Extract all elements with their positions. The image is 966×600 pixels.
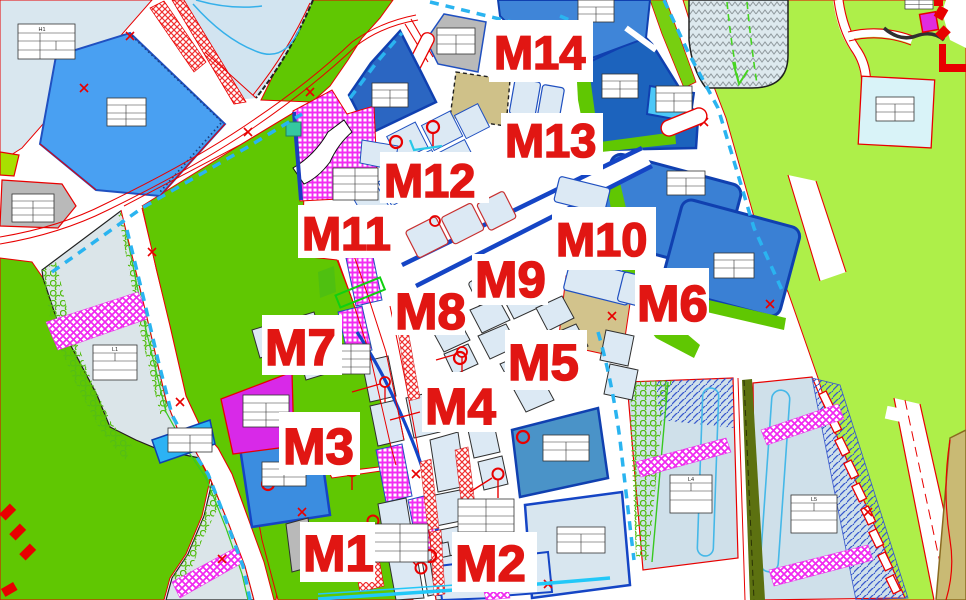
- svg-text:M14: M14: [494, 26, 585, 79]
- svg-text:M10: M10: [556, 213, 647, 266]
- svg-text:L5: L5: [811, 497, 817, 503]
- svg-text:L4: L4: [688, 477, 694, 483]
- svg-text:L1: L1: [112, 347, 118, 353]
- svg-text:M2: M2: [455, 535, 526, 592]
- svg-text:M4: M4: [425, 378, 496, 435]
- svg-text:M1: M1: [303, 525, 374, 582]
- svg-text:M11: M11: [302, 207, 391, 260]
- svg-text:M7: M7: [265, 319, 336, 376]
- svg-text:M9: M9: [475, 251, 546, 308]
- svg-text:M13: M13: [505, 114, 596, 167]
- svg-text:M3: M3: [283, 418, 354, 475]
- svg-text:H1: H1: [38, 27, 45, 33]
- svg-text:M5: M5: [508, 334, 579, 391]
- svg-text:M8: M8: [395, 283, 466, 340]
- svg-text:M6: M6: [637, 275, 708, 332]
- svg-text:M12: M12: [384, 154, 475, 207]
